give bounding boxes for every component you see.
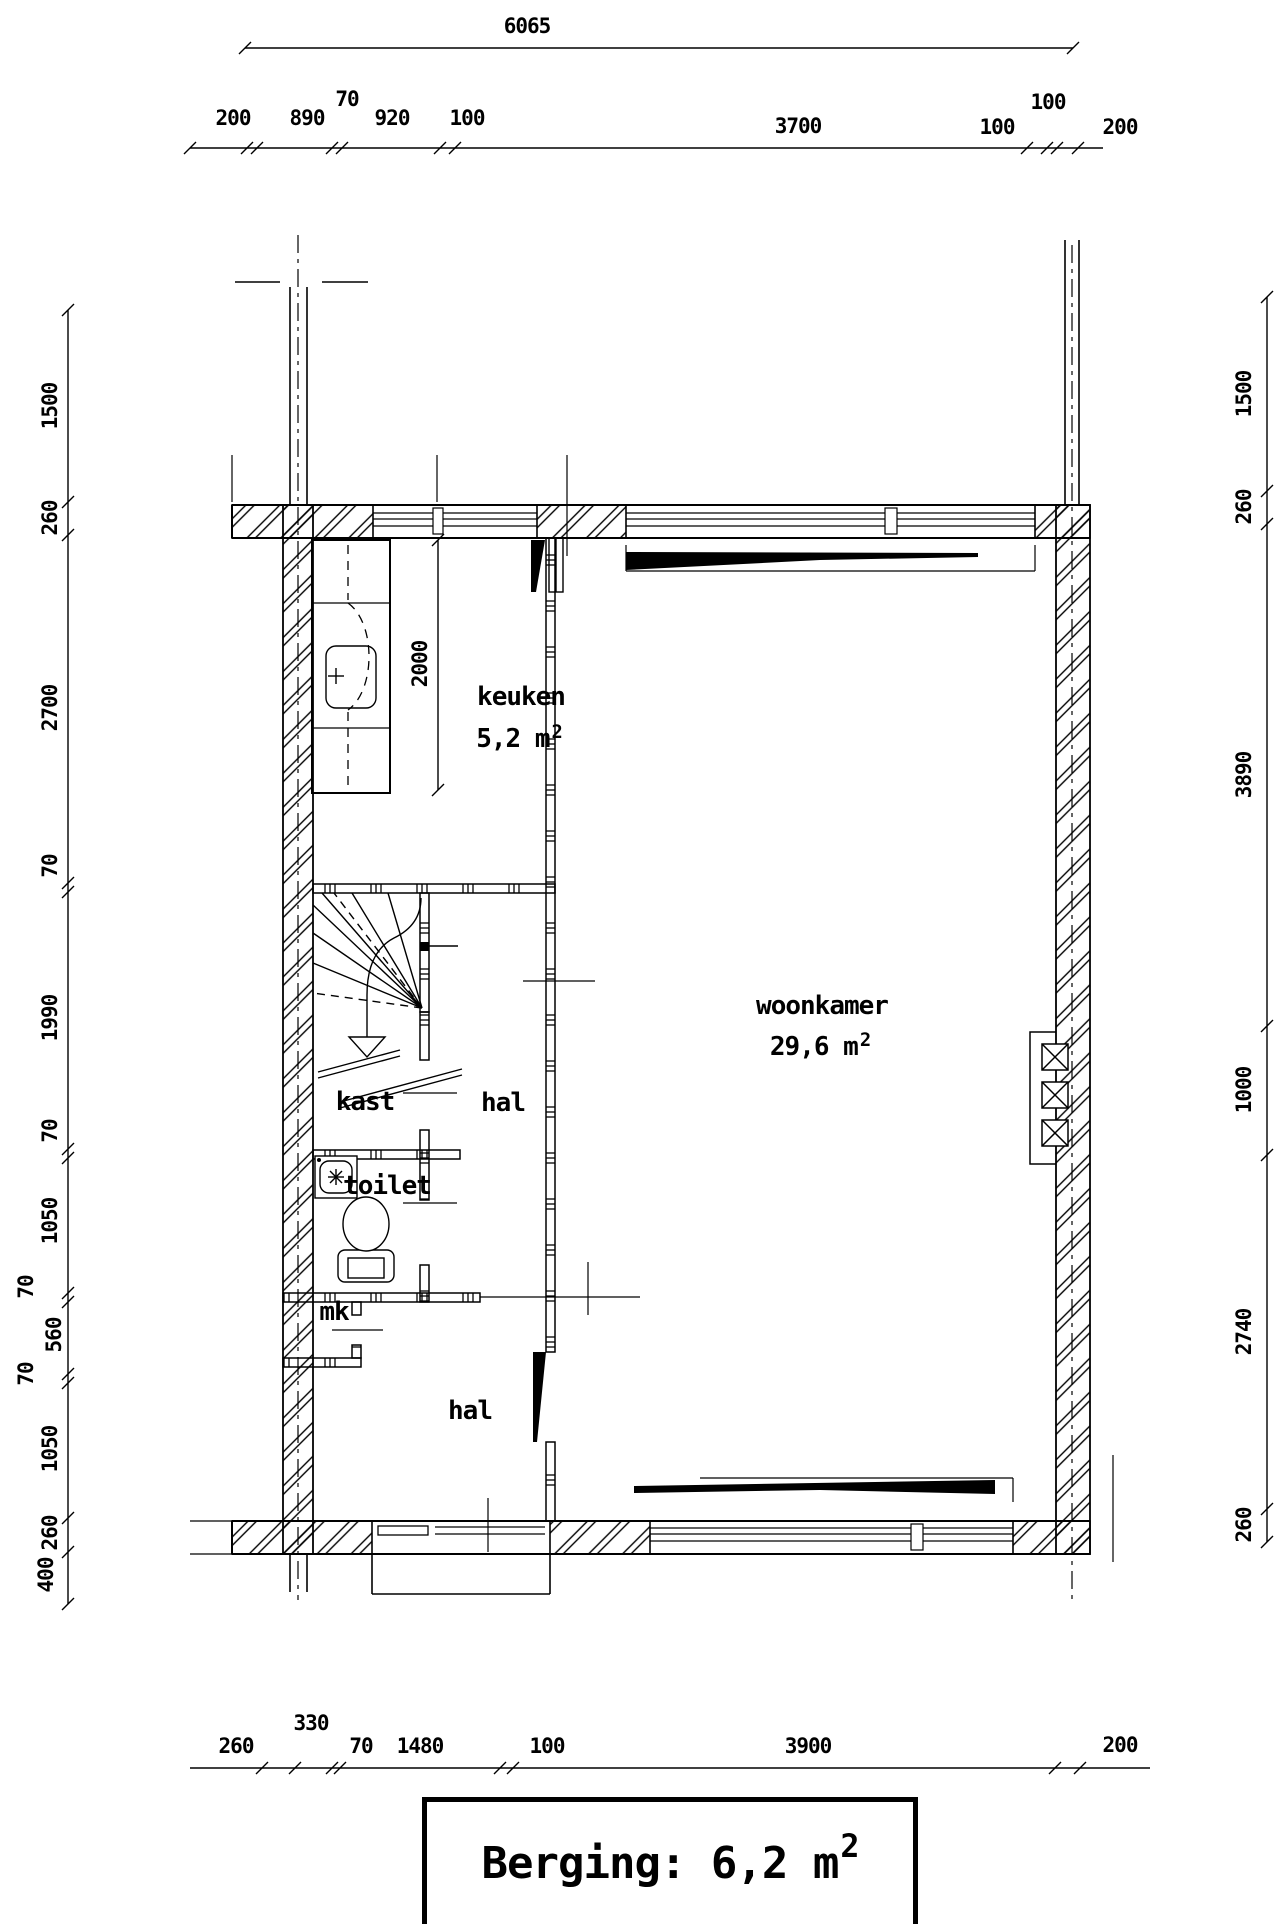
dimension-lines — [62, 42, 1273, 1774]
dim-left-4: 1990 — [38, 995, 62, 1042]
chimney — [1030, 1032, 1068, 1164]
dimension-ticks — [62, 42, 1273, 1774]
dim-bottom-1: 330 — [294, 1711, 329, 1735]
dim-top-1: 890 — [290, 106, 325, 130]
room-label-woonkamer: woonkamer — [756, 991, 888, 1021]
room-label-hal-lower: hal — [448, 1396, 492, 1426]
floor-plan-page: 6065 200 890 70 920 100 3700 100 100 200… — [0, 0, 1280, 1924]
dim-bottom-0: 260 — [219, 1734, 254, 1758]
dim-left-5: 70 — [38, 1119, 62, 1142]
party-wall-left — [283, 505, 313, 1554]
dim-right-5: 260 — [1232, 1508, 1256, 1543]
top-window-keuken — [373, 508, 537, 534]
room-label-hal-upper: hal — [481, 1088, 525, 1118]
dim-left-3: 70 — [38, 854, 62, 877]
chimney-flues — [1042, 1044, 1068, 1146]
top-window-woonkamer — [626, 508, 1035, 534]
room-label-toilet: toilet — [343, 1171, 431, 1201]
dim-left-8: 560 — [42, 1318, 66, 1353]
dim-right-0: 1500 — [1232, 371, 1256, 418]
sliding-door-top — [626, 545, 1035, 571]
title-box: Berging: 6,2 m2 — [422, 1797, 918, 1924]
dim-left-6: 1050 — [38, 1198, 62, 1245]
dim-bottom-4: 100 — [530, 1734, 565, 1758]
room-label-mk: mk — [319, 1297, 348, 1327]
hal-door-leaf — [533, 1352, 546, 1442]
extension-lines — [190, 455, 1113, 1562]
bottom-window — [650, 1524, 1013, 1550]
dim-left-2: 2700 — [38, 685, 62, 732]
wc — [338, 1197, 394, 1282]
door-leaf — [531, 540, 545, 592]
dim-right-3: 1000 — [1232, 1067, 1256, 1114]
sliding-door-bottom — [634, 1478, 1013, 1502]
floorplan-linework — [0, 0, 1280, 1924]
dim-left-1: 260 — [38, 501, 62, 536]
kitchen-sink — [326, 646, 376, 708]
dim-left-12: 400 — [34, 1558, 58, 1593]
dim-top-3: 920 — [375, 106, 410, 130]
dim-bottom-3: 1480 — [397, 1734, 444, 1758]
dim-left-10: 1050 — [38, 1426, 62, 1473]
dim-top-7: 100 — [1031, 90, 1066, 114]
dim-bottom-5: 3900 — [785, 1734, 832, 1758]
dim-top-5: 3700 — [775, 114, 822, 138]
dim-left-0: 1500 — [38, 383, 62, 430]
front-door — [378, 1526, 545, 1535]
dim-left-7: 70 — [14, 1275, 38, 1298]
dim-top-2: 70 — [335, 87, 358, 111]
stairs — [313, 893, 462, 1108]
dim-right-1: 260 — [1232, 490, 1256, 525]
superscript: 2 — [840, 1829, 858, 1865]
dim-bottom-2: 70 — [349, 1734, 372, 1758]
dim-left-9: 70 — [14, 1362, 38, 1385]
kitchen-counter — [312, 540, 390, 793]
entrance-porch — [372, 1554, 550, 1594]
party-wall-markers — [235, 235, 1079, 1600]
dim-right-2: 3890 — [1232, 752, 1256, 799]
dim-keuken-depth: 2000 — [408, 641, 432, 688]
room-label-kast: kast — [336, 1087, 395, 1117]
title-box-label: Berging: 6,2 m — [482, 1838, 839, 1889]
superscript: 2 — [860, 1030, 870, 1051]
stair-arrow — [349, 1037, 385, 1057]
dim-top-8: 200 — [1103, 115, 1138, 139]
dim-top-4: 100 — [450, 106, 485, 130]
dim-right-4: 2740 — [1232, 1309, 1256, 1356]
party-wall-right — [1056, 505, 1090, 1554]
dim-bottom-6: 200 — [1103, 1733, 1138, 1757]
dim-top-total: 6065 — [504, 14, 551, 38]
room-area-woonkamer: 29,6 m2 — [770, 1032, 870, 1062]
bottom-wall — [232, 1478, 1090, 1594]
dim-top-0: 200 — [216, 106, 251, 130]
room-label-keuken: keuken — [477, 682, 565, 712]
room-area-keuken: 5,2 m2 — [476, 724, 562, 754]
dim-left-11: 260 — [38, 1516, 62, 1551]
dim-top-6: 100 — [980, 115, 1015, 139]
superscript: 2 — [552, 722, 562, 743]
newel-post — [420, 942, 429, 951]
top-wall — [232, 505, 1090, 592]
